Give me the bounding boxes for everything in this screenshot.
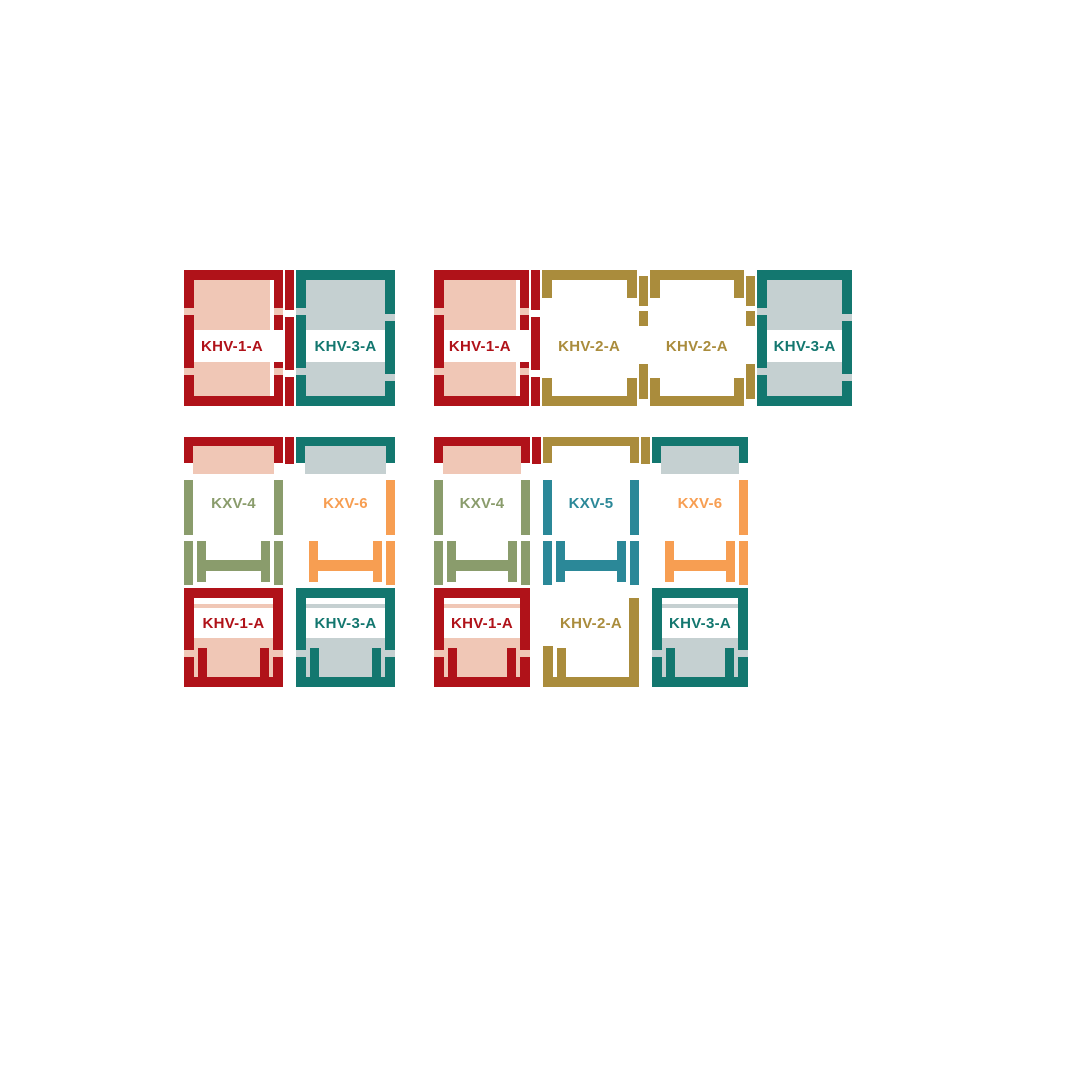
kxv-horizontal-bar: [447, 560, 517, 571]
band-pane-fill: [552, 446, 630, 474]
coupling-gap: [285, 370, 294, 377]
kxv-right-lower-bar: [739, 541, 748, 585]
frame-bottom-bar: [652, 677, 748, 687]
frame-notch: [757, 368, 767, 375]
band-coupling-bar: [285, 437, 294, 464]
frame-right-bar: [385, 588, 395, 687]
flashing-module-khv-2-a: KHV-2-A: [542, 270, 637, 406]
inner-stub: [310, 648, 319, 677]
kxv-left-bar: [543, 480, 552, 535]
kxv-right-bar: [274, 480, 283, 535]
frame-left-bar: [184, 588, 194, 687]
frame-bottom-bar: [296, 396, 395, 406]
kxv-right-lower-bar: [521, 541, 530, 585]
flashing-module-kxv-6: KXV-6: [296, 437, 395, 585]
frame-notch: [520, 368, 529, 375]
inner-stub: [372, 648, 381, 677]
kxv-left-lower-bar: [434, 541, 443, 585]
frame-right-bar: [738, 588, 748, 687]
flashing-module-kxv-6: KXV-6: [652, 437, 748, 585]
label-band: KHV-2-A: [660, 330, 735, 362]
inner-stub: [260, 648, 269, 677]
kxv-left-lower-bar: [543, 541, 552, 585]
kxv-right-lower-bar: [274, 541, 283, 585]
frame-left-bar: [757, 270, 767, 406]
frame-notch: [520, 650, 530, 657]
frame-notch: [385, 650, 395, 657]
frame-notch: [273, 650, 283, 657]
frame-notch: [434, 368, 444, 375]
label-band: KHV-1-A: [194, 608, 273, 638]
kxv-right-bar: [739, 480, 748, 535]
frame-notch: [274, 368, 283, 375]
frame-corner-stub: [542, 280, 552, 298]
flashing-label: KHV-2-A: [666, 338, 728, 355]
flashing-module-khv-3-a: KHV-3-A: [296, 588, 395, 687]
flashing-module-kxv-4: KXV-4: [184, 437, 283, 585]
column-junction: [283, 437, 296, 687]
flashing-label: KHV-2-A: [560, 615, 622, 632]
kxv-right-lower-bar: [630, 541, 639, 585]
band-corner-stub: [630, 446, 639, 463]
kxv-right-bar: [521, 480, 530, 535]
frame-top-bar: [434, 588, 530, 598]
frame-left-bar: [184, 270, 194, 406]
frame-notch: [434, 308, 444, 315]
band-corner-stub: [543, 446, 552, 463]
band-corner-stub: [274, 446, 283, 463]
frame-top-bar: [542, 270, 637, 280]
frame-bottom-bar: [296, 677, 395, 687]
module-junction: [637, 270, 650, 406]
label-band: KHV-1-A: [444, 330, 516, 362]
label-band: KHV-1-A: [194, 330, 270, 362]
kxv-left-bar: [184, 480, 193, 535]
flashing-module-khv-3-a: KHV-3-A: [652, 588, 748, 687]
flashing-label: KHV-1-A: [202, 615, 264, 632]
band-top-bar: [184, 437, 283, 446]
window-column: KXV-4 KHV-1-A: [434, 437, 530, 687]
flashing-label: KHV-3-A: [314, 338, 376, 355]
band-pane-fill: [305, 446, 386, 474]
flashing-label: KHV-1-A: [449, 338, 511, 355]
diagram-grid-two-by-two: KXV-4 KHV-1-A: [184, 437, 395, 687]
kxv-left-lower-bar: [184, 541, 193, 585]
frame-top-bar: [296, 588, 395, 598]
flashing-label: KHV-2-A: [558, 338, 620, 355]
flashing-label: KHV-3-A: [774, 338, 836, 355]
band-corner-stub: [296, 446, 305, 463]
frame-top-bar: [652, 588, 748, 598]
column-junction: [639, 437, 652, 687]
frame-notch: [296, 308, 306, 315]
label-band-cutout: [520, 330, 529, 362]
coupling-gap: [531, 310, 540, 317]
label-band: KHV-3-A: [306, 608, 385, 638]
frame-notch: [296, 368, 306, 375]
label-band: KXV-5: [552, 495, 630, 513]
band-corner-stub: [386, 446, 395, 463]
kxv-right-bar: [386, 480, 395, 535]
frame-left-bar: [652, 588, 662, 687]
frame-corner-stub: [650, 378, 660, 396]
kxv-horizontal-bar: [197, 560, 270, 571]
window-column: KXV-6 KHV-3-A: [296, 437, 395, 687]
flashing-label: KXV-4: [460, 495, 505, 512]
frame-notch: [757, 308, 767, 315]
frame-top-bar: [296, 270, 395, 280]
band-corner-stub: [521, 446, 530, 463]
coupling-gap: [531, 370, 540, 377]
flashing-label: KHV-1-A: [451, 615, 513, 632]
label-band: KHV-3-A: [662, 608, 738, 638]
coupling-bar: [531, 270, 540, 406]
coupling-gap: [746, 306, 755, 311]
frame-corner-stub: [627, 280, 637, 298]
label-band: KHV-2-A: [553, 608, 629, 638]
flashing-module-khv-3-a: KHV-3-A: [296, 270, 395, 406]
frame-bottom-bar: [184, 677, 283, 687]
kxv-right-lower-bar: [386, 541, 395, 585]
diagram-grid-two-by-three: KXV-4 KHV-1-A: [434, 437, 748, 687]
inner-stub: [725, 648, 734, 677]
frame-bottom-bar: [542, 396, 637, 406]
inner-stub: [666, 648, 675, 677]
frame-top-bar: [434, 270, 529, 280]
frame-bottom-bar: [434, 396, 529, 406]
coupling-gap: [639, 326, 648, 364]
band-top-bar: [296, 437, 395, 446]
label-band-cutout: [274, 330, 283, 362]
coupling-gap: [746, 326, 755, 364]
kxv-horizontal-bar: [556, 560, 626, 571]
frame-bottom-bar: [650, 396, 745, 406]
flashing-module-khv-1-a: KHV-1-A: [184, 588, 283, 687]
frame-notch: [520, 308, 529, 315]
label-band: KHV-1-A: [444, 608, 520, 638]
flashing-module-kxv-4: KXV-4: [434, 437, 530, 585]
coupling-bar: [285, 270, 294, 406]
flashing-label: KXV-6: [678, 495, 723, 512]
band-pane-fill: [661, 446, 739, 474]
frame-top-bar: [184, 588, 283, 598]
band-pane-fill: [443, 446, 521, 474]
label-band: KXV-4: [193, 495, 274, 513]
frame-bottom-bar: [543, 677, 639, 687]
column-junction: [530, 437, 543, 687]
frame-notch: [385, 314, 395, 321]
band-corner-stub: [652, 446, 661, 463]
label-band: KHV-3-A: [767, 330, 842, 362]
band-corner-stub: [434, 446, 443, 463]
flashing-module-khv-2-a: KHV-2-A: [543, 588, 639, 687]
band-corner-stub: [184, 446, 193, 463]
diagram-row-of-four: KHV-1-A KHV-2-A: [434, 270, 852, 406]
flashing-label: KXV-5: [569, 495, 614, 512]
frame-corner-stub: [734, 378, 744, 396]
module-junction: [283, 270, 296, 406]
frame-bottom-bar: [184, 396, 283, 406]
kxv-left-bar: [434, 480, 443, 535]
flashing-module-khv-2-a: KHV-2-A: [650, 270, 745, 406]
window-column: KXV-5 KHV-2-A: [543, 437, 639, 687]
flashing-module-khv-3-a: KHV-3-A: [757, 270, 852, 406]
flashing-label: KXV-6: [323, 495, 368, 512]
frame-notch: [296, 650, 306, 657]
band-coupling-bar: [641, 437, 650, 464]
frame-top-bar: [650, 270, 745, 280]
flashing-module-khv-1-a: KHV-1-A: [434, 270, 529, 406]
frame-notch: [842, 314, 852, 321]
inner-stub: [198, 648, 207, 677]
diagram-row-of-two: KHV-1-A KHV-3-A: [184, 270, 395, 406]
window-column: KXV-6 KHV-3-A: [652, 437, 748, 687]
frame-notch: [184, 308, 194, 315]
label-band: KXV-6: [305, 495, 386, 513]
frame-right-bar: [629, 598, 639, 687]
frame-left-bar: [296, 588, 306, 687]
frame-left-bar: [434, 270, 444, 406]
frame-corner-stub: [627, 378, 637, 396]
frame-left-bar: [543, 646, 553, 687]
frame-left-bar: [296, 270, 306, 406]
frame-right-bar: [842, 270, 852, 406]
inner-stub: [448, 648, 457, 677]
flashing-label: KHV-3-A: [314, 615, 376, 632]
band-top-bar: [543, 437, 639, 446]
flashing-label: KXV-4: [211, 495, 256, 512]
frame-bottom-bar: [434, 677, 530, 687]
label-band: KHV-3-A: [306, 330, 385, 362]
frame-right-bar: [385, 270, 395, 406]
flashing-module-khv-1-a: KHV-1-A: [184, 270, 283, 406]
frame-notch: [842, 374, 852, 381]
flashing-module-khv-1-a: KHV-1-A: [434, 588, 530, 687]
frame-notch: [385, 374, 395, 381]
frame-notch: [274, 308, 283, 315]
flashing-module-kxv-5: KXV-5: [543, 437, 639, 585]
kxv-right-bar: [630, 480, 639, 535]
frame-right-bar: [520, 588, 530, 687]
inner-stub: [557, 648, 566, 677]
frame-notch: [434, 650, 444, 657]
kxv-horizontal-bar: [309, 560, 382, 571]
flashing-label: KHV-1-A: [201, 338, 263, 355]
frame-notch: [652, 650, 662, 657]
coupling-gap: [639, 306, 648, 311]
flashing-combination-sheet: KHV-1-A KHV-3-A: [0, 0, 1066, 1066]
frame-corner-stub: [542, 378, 552, 396]
frame-top-bar: [757, 270, 852, 280]
frame-notch: [184, 368, 194, 375]
band-pane-fill: [193, 446, 274, 474]
frame-left-bar: [434, 588, 444, 687]
frame-corner-stub: [650, 280, 660, 298]
band-top-bar: [434, 437, 530, 446]
frame-notch: [738, 650, 748, 657]
band-corner-stub: [739, 446, 748, 463]
module-junction: [529, 270, 542, 406]
band-top-bar: [652, 437, 748, 446]
flashing-label: KHV-3-A: [669, 615, 731, 632]
frame-bottom-bar: [757, 396, 852, 406]
window-column: KXV-4 KHV-1-A: [184, 437, 283, 687]
kxv-horizontal-bar: [665, 560, 735, 571]
inner-stub: [507, 648, 516, 677]
band-coupling-bar: [532, 437, 541, 464]
frame-notch: [184, 650, 194, 657]
frame-top-bar: [184, 270, 283, 280]
label-band: KXV-4: [443, 495, 521, 513]
frame-corner-stub: [734, 280, 744, 298]
frame-right-bar: [273, 588, 283, 687]
module-junction: [744, 270, 757, 406]
label-band: KHV-2-A: [552, 330, 627, 362]
label-band: KXV-6: [661, 495, 739, 513]
coupling-gap: [285, 310, 294, 317]
